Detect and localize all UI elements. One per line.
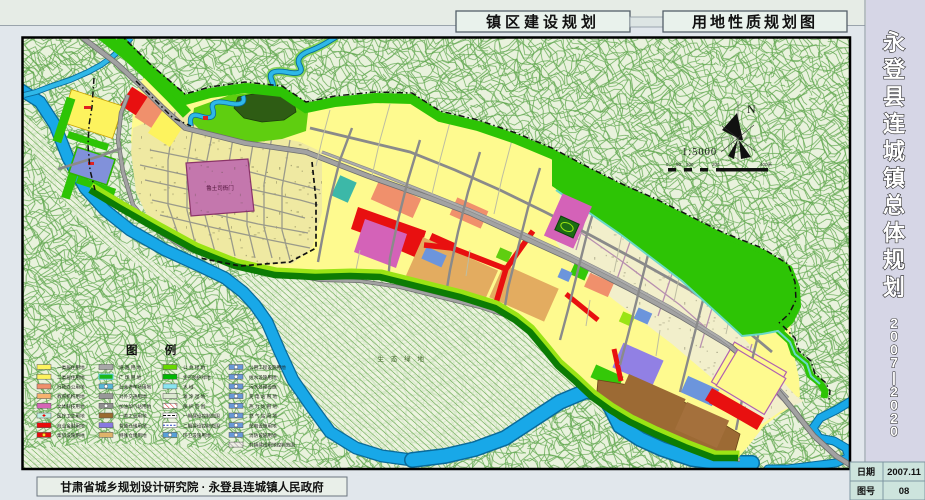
svg-text:城: 城 [883,139,905,164]
svg-text:鲁土司衙门: 鲁土司衙门 [206,184,234,192]
svg-text:划: 划 [883,275,905,300]
svg-text:1:5000: 1:5000 [682,147,717,158]
svg-text:对外交通用地: 对外交通用地 [119,393,147,400]
svg-text:公用工程设施用地: 公用工程设施用地 [249,364,286,371]
svg-text:一类工业用地: 一类工业用地 [119,413,147,420]
svg-text:200: 200 [712,162,720,167]
svg-text:N: N [747,102,756,116]
svg-text:400米: 400米 [760,161,773,168]
svg-text:图 例: 图 例 [126,343,188,357]
svg-text:环卫设施用地: 环卫设施用地 [183,432,211,439]
svg-text:50: 50 [676,162,682,167]
svg-text:给水设施用地: 给水设施用地 [249,374,277,381]
svg-text:一期建设控制范围: 一期建设控制范围 [183,413,220,420]
svg-text:文体科技用地: 文体科技用地 [57,403,85,410]
svg-text:社会停车场用地: 社会停车场用地 [119,384,152,391]
svg-text:商业金融用地: 商业金融用地 [57,422,85,429]
svg-text:体: 体 [883,220,906,245]
svg-text:生产防护绿地: 生产防护绿地 [183,374,211,381]
svg-text:保 护 范 围: 保 护 范 围 [183,403,206,410]
svg-text:燃 气 站 用 地: 燃 气 站 用 地 [249,413,277,420]
svg-text:变 电 站 用 地: 变 电 站 用 地 [249,393,277,400]
svg-text:滩 涂 湿 地: 滩 涂 湿 地 [183,393,206,400]
svg-text:特殊仓储用地: 特殊仓储用地 [119,432,147,439]
svg-text:永: 永 [883,30,905,55]
svg-text:道 路 用 地: 道 路 用 地 [119,364,142,371]
svg-text:图号: 图号 [857,486,875,496]
svg-text:100: 100 [686,162,694,167]
svg-text:普通仓储用地: 普通仓储用地 [119,422,147,429]
svg-text:二期建设控制范围: 二期建设控制范围 [183,422,220,429]
svg-text:用地性质规划图: 用地性质规划图 [692,13,818,31]
svg-text:镇: 镇 [883,166,905,191]
svg-text:消防设施用地: 消防设施用地 [249,432,277,439]
svg-text:镇区建设规划: 镇区建设规划 [486,13,600,31]
svg-text:一类居住用地: 一类居住用地 [57,364,85,371]
svg-text:0: 0 [890,423,898,439]
svg-text:登: 登 [882,57,906,82]
svg-text:村镇建设用地控制范围: 村镇建设用地控制范围 [249,442,295,449]
svg-text:教育机构用地: 教育机构用地 [57,393,85,400]
svg-text:|: | [892,369,896,385]
svg-text:连: 连 [883,112,906,137]
svg-text:总: 总 [883,193,905,218]
svg-text:规: 规 [883,248,905,273]
svg-text:二类居住用地: 二类居住用地 [57,374,85,381]
svg-text:集贸设施用地: 集贸设施用地 [57,432,85,439]
svg-text:加油加气站用地: 加油加气站用地 [119,403,152,410]
svg-text:热 力 站 用 地: 热 力 站 用 地 [249,403,277,410]
svg-text:日期: 日期 [857,466,875,477]
svg-text:水 域: 水 域 [183,384,194,390]
svg-text:2007.11: 2007.11 [887,467,922,478]
svg-text:广 场 用 地: 广 场 用 地 [119,374,142,381]
svg-text:08: 08 [899,486,910,497]
svg-text:生 态 绿 地: 生 态 绿 地 [378,354,427,363]
svg-text:公 共 绿 地: 公 共 绿 地 [183,364,206,371]
svg-text:污水处理设施: 污水处理设施 [249,384,277,391]
svg-text:甘肃省城乡规划设计研究院 · 永登县连城镇人民政府: 甘肃省城乡规划设计研究院 · 永登县连城镇人民政府 [60,480,324,494]
svg-text:县: 县 [883,84,905,109]
svg-text:邮电设施用地: 邮电设施用地 [249,422,277,429]
svg-text:行政办公用地: 行政办公用地 [57,384,85,391]
svg-text:医疗卫生用地: 医疗卫生用地 [57,413,85,420]
